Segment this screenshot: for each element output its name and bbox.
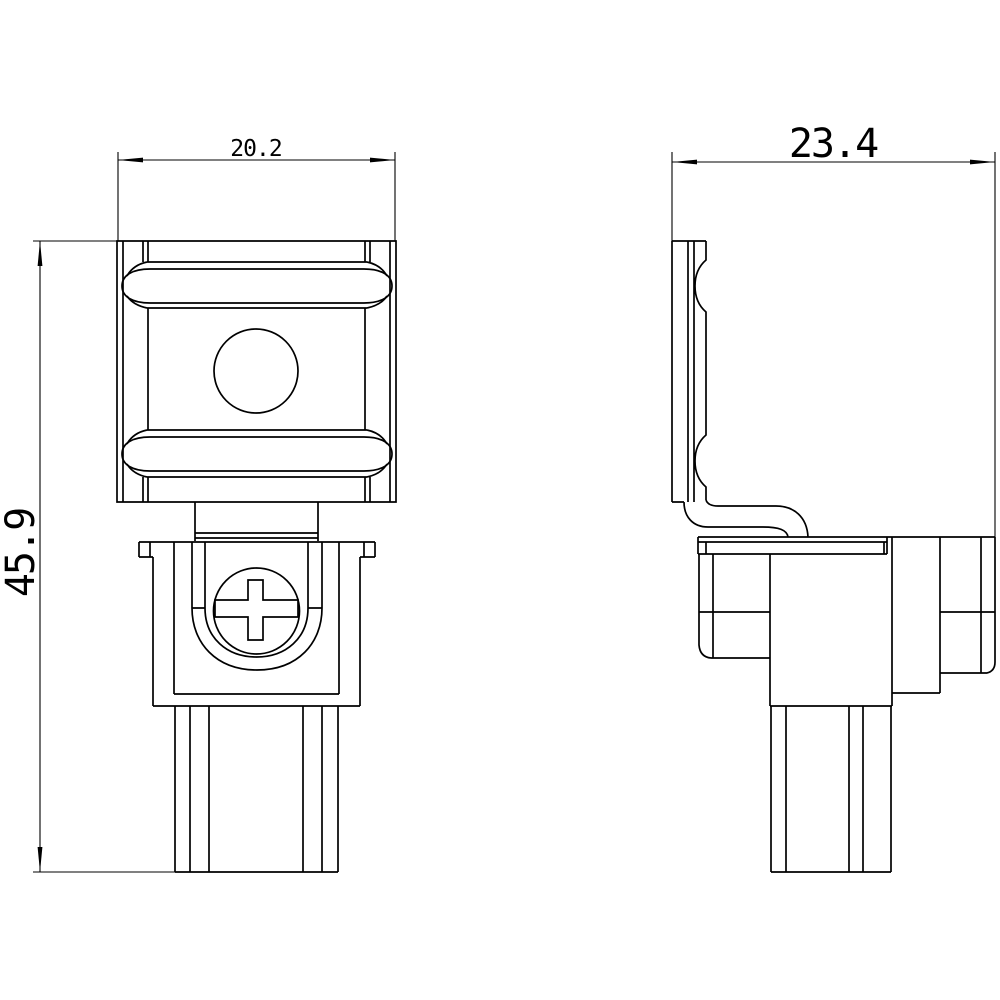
- front-legs: [175, 706, 338, 872]
- side-view: [672, 241, 995, 872]
- terminal-clamp-two-view-drawing: 20.2 45.9 23.4: [0, 0, 1000, 1000]
- arrow-up-icon: [38, 241, 43, 266]
- front-top-block-details: [127, 241, 387, 502]
- arrow-right-icon: [370, 158, 395, 163]
- dimension-front-width: 20.2: [118, 136, 395, 241]
- dimension-side-width-value: 23.4: [789, 121, 878, 167]
- arrow-down-icon: [38, 847, 43, 872]
- dimension-side-width-lines: [672, 152, 995, 537]
- front-upper-ridge: [122, 269, 392, 303]
- dimension-front-width-value: 20.2: [230, 136, 281, 162]
- front-neck: [195, 502, 318, 541]
- arrow-right-icon: [970, 160, 995, 165]
- front-top-block-outline: [117, 241, 396, 502]
- technical-drawing-page: 20.2 45.9 23.4: [0, 0, 1000, 1000]
- arrow-left-icon: [118, 158, 143, 163]
- side-bend-arm: [684, 500, 808, 537]
- dimension-front-width-lines: [118, 152, 395, 241]
- phillips-cross-icon: [215, 580, 298, 640]
- mounting-hole: [214, 329, 298, 413]
- front-lower-ridge: [122, 437, 392, 471]
- arrow-left-icon: [672, 160, 697, 165]
- side-base-body: [698, 537, 995, 872]
- side-plate: [672, 241, 706, 502]
- dimension-front-height-lines: [33, 241, 175, 872]
- dimension-front-height-value: 45.9: [0, 509, 44, 597]
- dimension-side-width: 23.4: [672, 121, 995, 537]
- front-view: [117, 241, 396, 872]
